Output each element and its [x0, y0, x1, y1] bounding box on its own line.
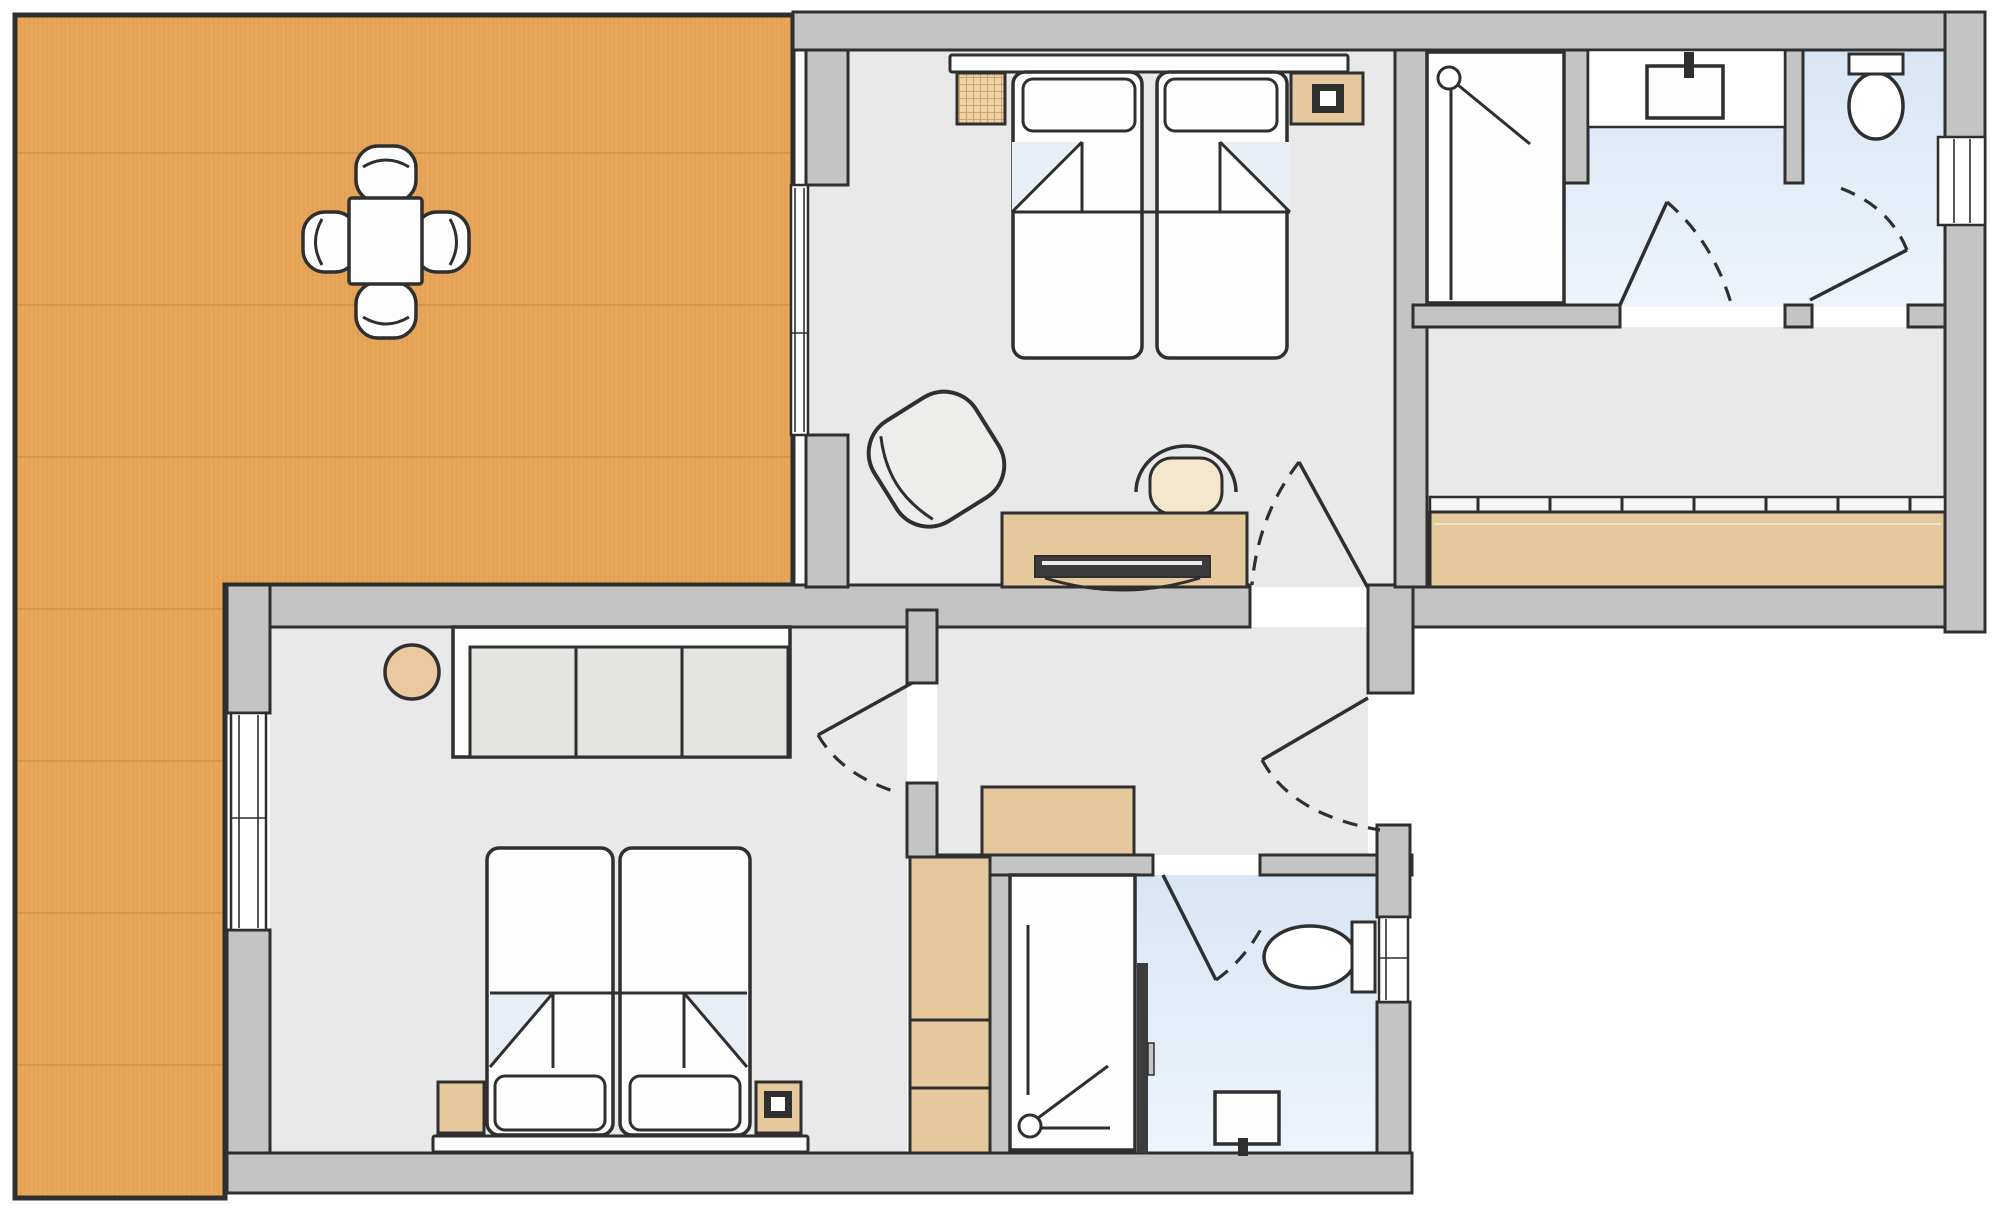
- wall-bedroom1-left-upper: [806, 50, 848, 185]
- wall-main-horizontal: [225, 585, 1250, 627]
- wall-bedroom2-left-lower: [227, 930, 270, 1155]
- shower-1: [1427, 52, 1564, 303]
- wall-corridor-bottom: [1413, 585, 1945, 627]
- bed-2-pillow-left: [495, 1076, 605, 1130]
- chair-bottom: [356, 282, 416, 338]
- bed-2-headboard: [433, 1136, 808, 1152]
- stool: [385, 645, 439, 699]
- washbasin-1-tap: [1684, 52, 1694, 78]
- toilet-2-tank: [1352, 922, 1375, 992]
- wardrobe-2-inner: [470, 647, 788, 757]
- toilet-1-tank: [1849, 54, 1903, 74]
- wall-bedroom1-left-lower: [806, 435, 848, 587]
- washbasin-2-basin: [1215, 1092, 1279, 1144]
- bed-1-pillow-right: [1165, 79, 1277, 131]
- toilet-1-bowl: [1849, 73, 1903, 139]
- wall-bath1-bottom-right: [1908, 305, 1945, 327]
- wall-bath2-divider: [1137, 963, 1148, 1153]
- sideboard: [982, 787, 1134, 855]
- corridor-wardrobe: [1430, 497, 1945, 587]
- wardrobe-2: [453, 627, 790, 757]
- wall-bedroom2-left-upper: [227, 585, 270, 713]
- wall-right-outer: [1945, 12, 1985, 632]
- corridor: [1430, 497, 1945, 587]
- toilet-2: [1264, 922, 1375, 992]
- chair-top: [356, 146, 416, 202]
- wall-bedroom2-right-stub: [907, 610, 937, 683]
- bed-1-nightstand-hatched: [957, 73, 1005, 124]
- shower-1-head: [1438, 67, 1460, 89]
- toilet-2-bowl: [1264, 926, 1356, 988]
- bed-1-pillow-left: [1023, 79, 1135, 131]
- corridor-wardrobe-rail: [1430, 497, 1945, 512]
- wall-bottom-outer: [227, 1153, 1412, 1193]
- toilet-1: [1849, 54, 1903, 139]
- bed-2-nightstand-plain: [438, 1082, 484, 1133]
- bed-1-headboard: [950, 55, 1348, 72]
- wall-bath1-bottom-left: [1413, 305, 1620, 327]
- wall-bath2-right-upper: [1377, 825, 1410, 917]
- desk-chair-seat: [1150, 458, 1222, 514]
- bed-1-lamp-inner: [1320, 91, 1336, 106]
- vanity-1: [1588, 50, 1785, 127]
- wall-top-outer: [793, 12, 1985, 50]
- window-bathroom2-right: [1379, 917, 1408, 1002]
- wall-bath1-divider-b: [1785, 50, 1803, 183]
- floor-plan: [0, 0, 2000, 1213]
- bed-2-lamp-inner: [771, 1097, 785, 1111]
- wall-bath2-right-lower: [1377, 1002, 1410, 1153]
- window-bedroom1-left: [791, 185, 808, 435]
- window-bathroom1-right: [1938, 137, 1985, 225]
- wall-bath1-divider-a: [1563, 50, 1588, 183]
- dining-table: [349, 198, 422, 284]
- wall-bath1-threshold: [1785, 305, 1812, 327]
- bed-2-pillow-right: [630, 1076, 740, 1130]
- wall-bath2-divider-tick: [1148, 1043, 1154, 1075]
- laptop: [1035, 556, 1210, 577]
- bed-2: [433, 848, 808, 1152]
- washbasin-2-tap: [1238, 1138, 1248, 1156]
- wall-stub-hallway: [1368, 585, 1413, 693]
- shower-2: [1010, 875, 1135, 1150]
- shower-2-head: [1019, 1115, 1041, 1137]
- laptop-slit: [1042, 561, 1202, 565]
- window-bedroom2-left: [231, 713, 266, 930]
- tall-cabinet: [910, 857, 990, 1153]
- wall-bedroom2-right-lower: [907, 783, 937, 857]
